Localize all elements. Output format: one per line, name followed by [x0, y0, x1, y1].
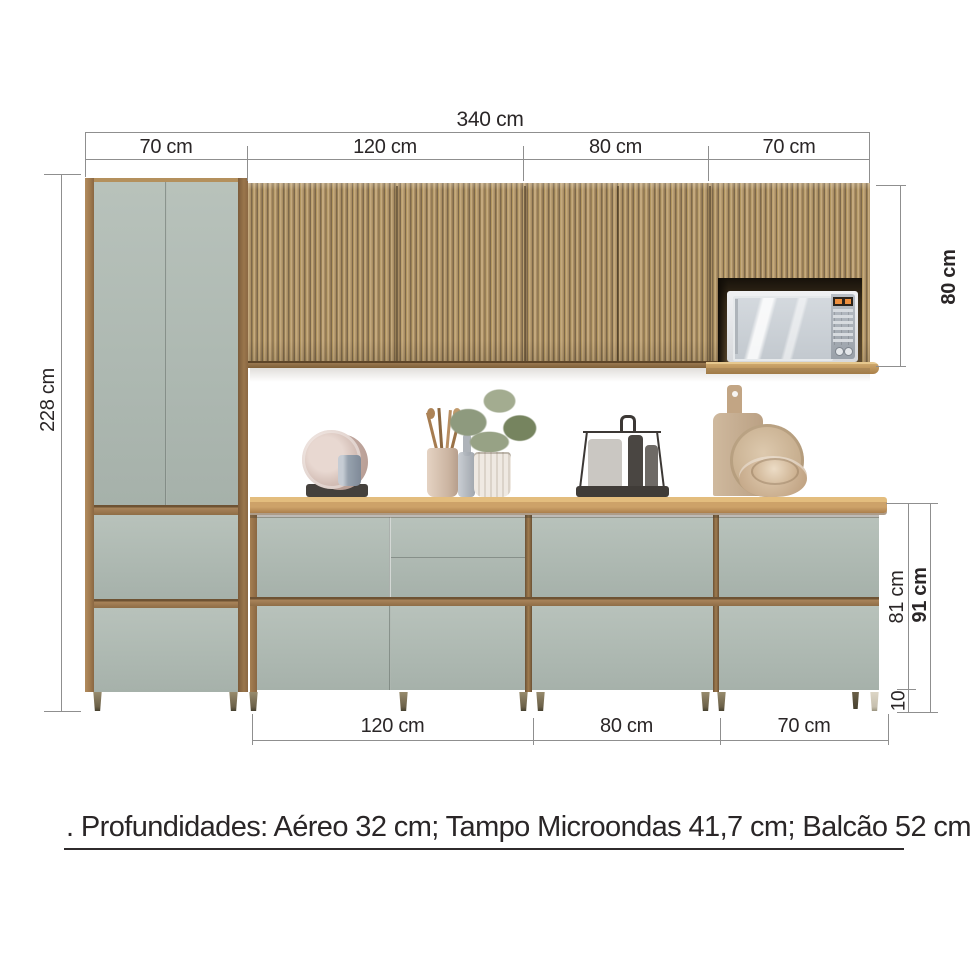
upper-door-gap-1 [396, 186, 398, 362]
upper-cabinet-bottom-edge [248, 361, 718, 368]
dim-bottom-segment-label: 120 cm [252, 716, 533, 736]
tall-cabinet-drawer-1 [94, 515, 238, 599]
dim-left-height-label: 228 cm [38, 368, 58, 432]
base-top-shadow [250, 515, 879, 518]
base-120-doors-bottom [257, 606, 525, 690]
upper-door-gap-3 [617, 186, 619, 362]
dim-bottom-segment-label: 80 cm [533, 716, 720, 736]
microwave-dial [835, 347, 844, 356]
upper-door-gap-4 [709, 186, 711, 362]
dim-top-segment-label: 120 cm [247, 137, 523, 157]
countertop [250, 497, 887, 513]
microwave-buttons [833, 309, 853, 345]
dim-top-segment-label: 80 cm [523, 137, 708, 157]
cabinet-leg [398, 692, 409, 711]
microwave-door-window [733, 296, 833, 361]
rack-dark-bottle [628, 435, 643, 489]
rack-gray-bottle [645, 445, 658, 489]
dim-tick [888, 714, 889, 745]
dim-left-height-line [61, 174, 62, 712]
dim-upper-right-label: 80 cm [939, 249, 959, 304]
microwave-handle [735, 299, 738, 354]
tall-cabinet-divider-2 [94, 599, 238, 608]
microwave-display [833, 297, 853, 306]
upper-door-gap-2 [524, 186, 526, 362]
dim-tick [886, 503, 938, 504]
dim-overall-width-label: 340 cm [85, 109, 895, 130]
cabinet-leg [518, 692, 529, 711]
base-120-bottom-gap [389, 606, 391, 690]
wall-shadow [250, 368, 870, 382]
cabinet-leg [851, 692, 860, 709]
rack-board [588, 439, 622, 489]
rack-hook [620, 415, 636, 432]
dim-tick [876, 366, 906, 367]
cabinet-leg [535, 692, 546, 711]
dim-base-body-label: 81 cm [887, 571, 907, 624]
microwave-dial-2 [844, 347, 853, 356]
decor-dish-rack [576, 415, 669, 497]
dim-tick [897, 712, 938, 713]
microwave-display-digits [835, 299, 842, 304]
tall-cabinet-divider-1 [94, 505, 238, 515]
rack-wire-top [583, 431, 661, 433]
dim-bottom-segments-line [252, 740, 888, 741]
dim-bottom-segment-label: 70 cm [720, 716, 888, 736]
base-80-drawer-top [532, 517, 713, 597]
dim-top-segment-label: 70 cm [85, 137, 247, 157]
microwave-control-panel [831, 294, 855, 359]
base-cabinet-run [250, 515, 879, 692]
dim-top-segment-label: 70 cm [708, 137, 870, 157]
tall-cabinet [85, 178, 248, 692]
depths-note-underline [64, 848, 904, 850]
tall-cabinet-left-panel [85, 178, 94, 692]
base-middle-strip [250, 597, 879, 606]
cabinet-leg [700, 692, 711, 711]
decor-paddle-board-hole [732, 391, 738, 397]
kitchen-dimension-diagram: 340 cm 70 cm 120 cm 80 cm 70 cm 228 cm 8… [0, 0, 975, 975]
decor-bowl-inner [751, 458, 799, 485]
decor-cup [338, 455, 361, 486]
dim-tick [44, 711, 81, 712]
cabinet-leg [248, 692, 259, 711]
cabinet-leg [228, 692, 239, 711]
microwave [727, 291, 858, 362]
base-80-door-bottom [532, 606, 713, 690]
tall-cabinet-door-gap [165, 182, 167, 505]
base-70-door-bottom [719, 606, 879, 690]
dim-tick [44, 174, 81, 175]
cabinet-leg-cream [869, 692, 880, 711]
dim-tick [876, 185, 906, 186]
base-120-drawer-gap [391, 557, 525, 559]
depths-note: . Profundidades: Aéreo 32 cm; Tampo Micr… [66, 813, 971, 842]
cabinet-leg [92, 692, 103, 711]
base-70-drawer-top [719, 517, 879, 597]
utensil-spoon-head [427, 408, 435, 419]
base-120-top-gap [389, 517, 391, 597]
base-120-door-top [257, 517, 389, 597]
dim-top-segments-line [85, 159, 870, 160]
microwave-display-digits-2 [845, 299, 851, 304]
dim-leg-height-label: 10 [890, 691, 909, 712]
tall-cabinet-drawer-2 [94, 608, 238, 692]
dim-base-total-label: 91 cm [910, 567, 930, 622]
decor-vase [474, 452, 511, 497]
base-120-drawers [391, 517, 525, 597]
tall-cabinet-doors [94, 182, 238, 505]
rack-tray [576, 486, 669, 497]
dim-overall-width-line [85, 132, 870, 133]
dim-upper-right-line [900, 185, 901, 367]
cabinet-leg [716, 692, 727, 711]
tall-cabinet-right-panel [238, 178, 248, 692]
